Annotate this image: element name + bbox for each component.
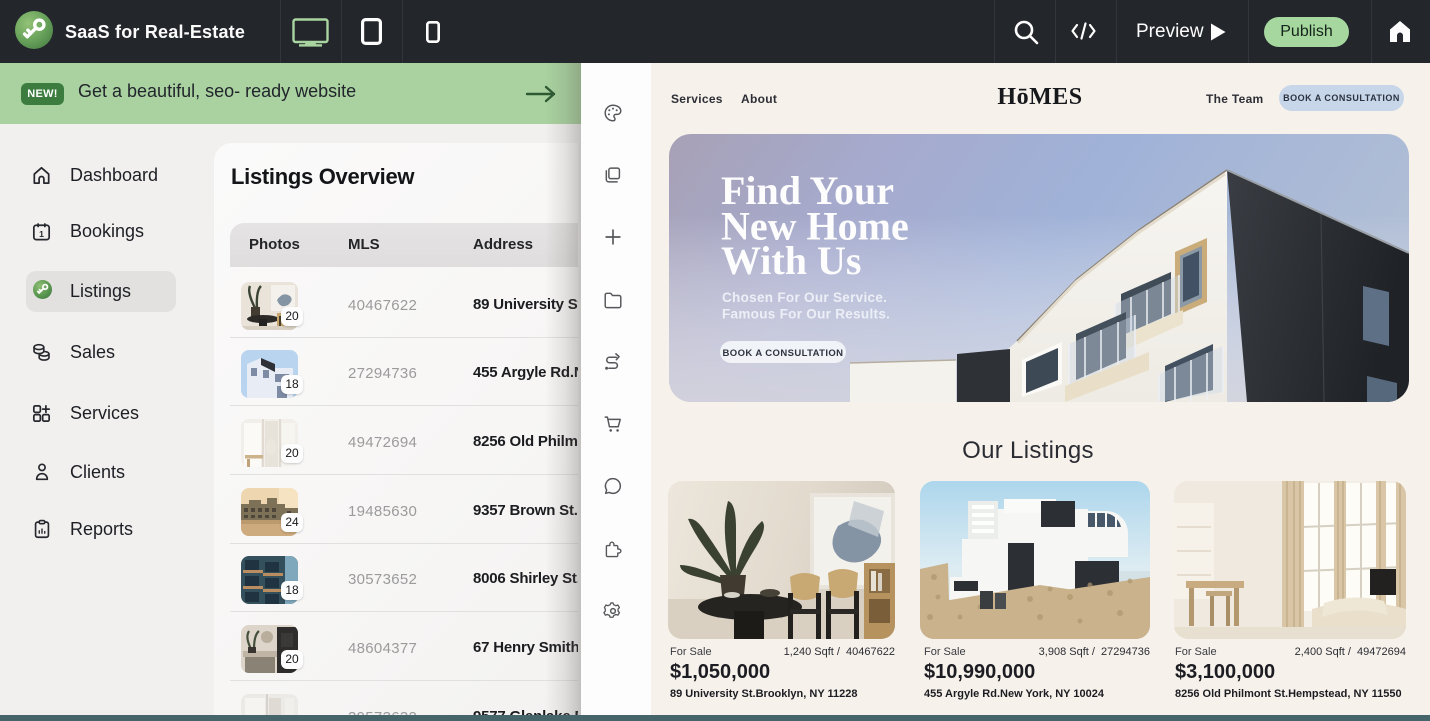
svg-text:With Us: With Us <box>721 238 861 283</box>
svg-text:Famous For Our Results.: Famous For Our Results. <box>722 307 890 322</box>
svg-text:BOOK A CONSULTATION: BOOK A CONSULTATION <box>723 348 844 359</box>
svg-text:Chosen For Our Service.: Chosen For Our Service. <box>722 290 887 305</box>
svg-text:1: 1 <box>39 229 44 239</box>
